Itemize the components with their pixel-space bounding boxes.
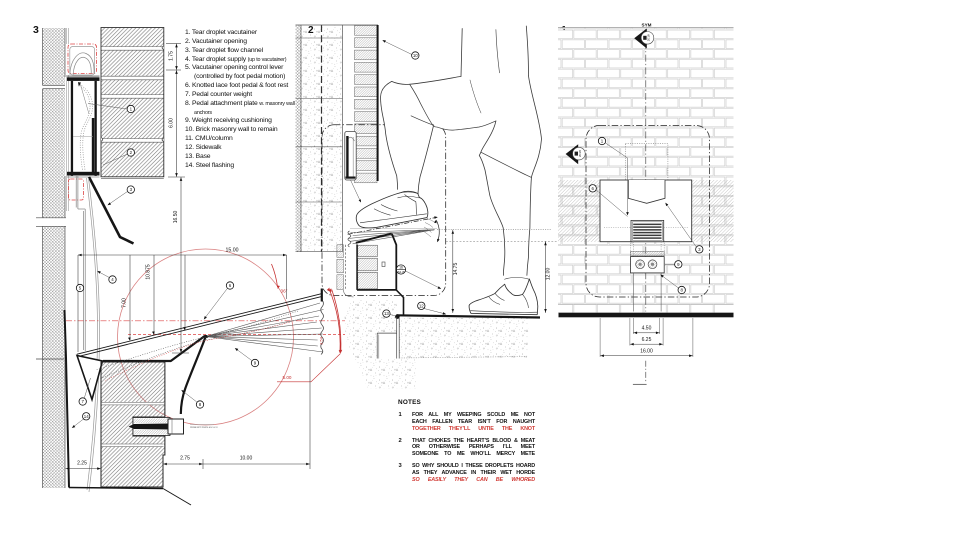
svg-text:14.75: 14.75 <box>453 263 459 276</box>
svg-text:SYM: SYM <box>642 23 652 28</box>
svg-text:7.00: 7.00 <box>122 298 128 308</box>
svg-text:4.50: 4.50 <box>642 326 652 332</box>
svg-text:12: 12 <box>419 303 424 308</box>
svg-text:12.00: 12.00 <box>546 268 552 281</box>
svg-text:2.25: 2.25 <box>77 461 87 467</box>
svg-text:10.00: 10.00 <box>240 456 253 462</box>
svg-text:5.00: 5.00 <box>283 375 292 380</box>
svg-text:6.00: 6.00 <box>169 118 175 128</box>
svg-text:2.75: 2.75 <box>180 456 190 462</box>
svg-text:6.25: 6.25 <box>642 337 652 343</box>
svg-text:13: 13 <box>384 311 389 316</box>
svg-text:15.00: 15.00 <box>226 248 239 254</box>
svg-text:16: 16 <box>399 265 403 269</box>
svg-text:10: 10 <box>413 53 418 58</box>
svg-text:3: 3 <box>33 24 39 36</box>
svg-text:2018: 2018 <box>578 150 582 157</box>
svg-text:2018: 2018 <box>647 34 651 41</box>
svg-text:1.75: 1.75 <box>169 51 175 61</box>
svg-text:3.54: 3.54 <box>319 336 324 345</box>
svg-text:S1.8: S1.8 <box>398 270 405 274</box>
svg-text:16.50: 16.50 <box>173 211 179 224</box>
svg-text:10.875: 10.875 <box>146 264 152 280</box>
svg-text:14: 14 <box>84 414 89 419</box>
svg-text:16.00: 16.00 <box>640 348 653 354</box>
svg-text:PEDAL ATT. PLATE ANCHOR: PEDAL ATT. PLATE ANCHOR <box>190 426 218 429</box>
